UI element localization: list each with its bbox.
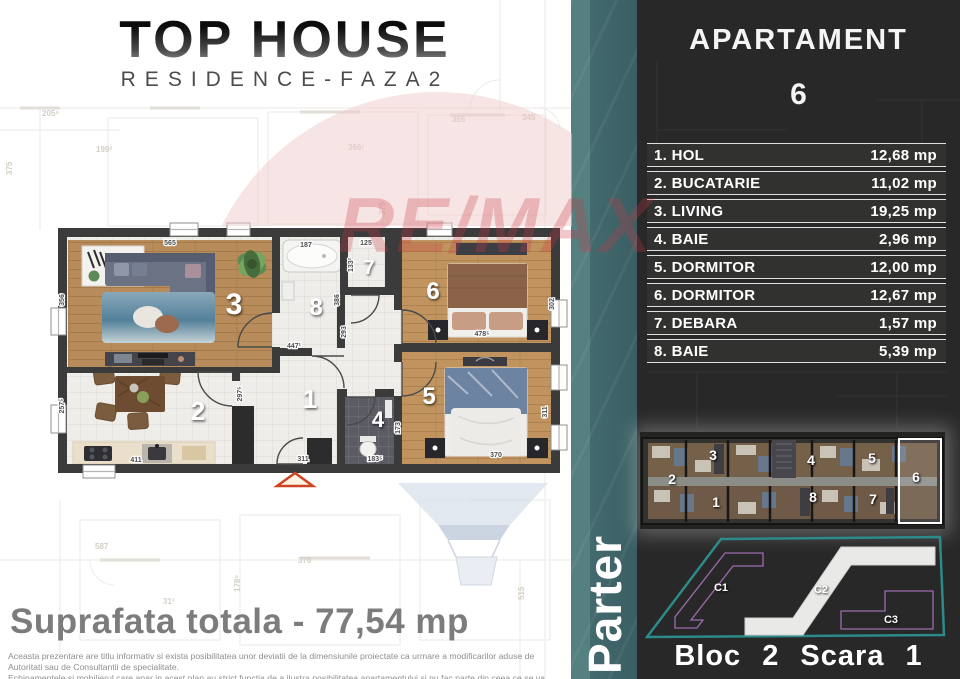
svg-text:355: 355 [452, 115, 466, 124]
room-row: 2. BUCATARIE11,02 mp [647, 171, 946, 195]
svg-text:366¹: 366¹ [348, 143, 364, 152]
svg-text:2: 2 [668, 471, 676, 487]
svg-text:370: 370 [490, 452, 502, 459]
svg-text:125: 125 [360, 240, 372, 247]
svg-text:199³: 199³ [96, 145, 112, 154]
brand-logo: TOP HOUSE RESIDENCE-FAZA2 [60, 14, 510, 92]
bloc-scara-label: Bloc 2 Scara 1 [637, 640, 960, 673]
svg-text:447¹: 447¹ [287, 343, 302, 350]
site-plan: C1C2C3 [645, 533, 947, 639]
room-label: 2. BUCATARIE [654, 175, 760, 192]
room-row: 6. DORMITOR12,67 mp [647, 283, 946, 307]
room-label: 6. DORMITOR [654, 287, 755, 304]
disclaimer-line-1: Aceasta prezentare are titlu informativ … [8, 651, 553, 673]
room-label: 8. BAIE [654, 343, 709, 360]
svg-text:345: 345 [522, 113, 536, 122]
svg-text:386: 386 [334, 294, 341, 306]
real-estate-poster: 205⁵199³375355375345366¹587178⁵31³515378… [0, 0, 960, 679]
disclaimer-line-2: Echipamentele si mobilierul care apar in… [8, 673, 553, 679]
floor-name-vertical: Parter [578, 372, 634, 674]
highlighted-apartment-outline [899, 439, 941, 523]
entrance-triangle-icon [277, 473, 313, 486]
room-area: 12,68 mp [870, 147, 937, 164]
room-area: 1,57 mp [879, 315, 937, 332]
svg-text:133²: 133² [348, 257, 355, 272]
floorplan: 565356257⁵411297⁵447¹293187125133²386311… [48, 216, 570, 493]
svg-text:1: 1 [712, 494, 720, 510]
info-panel: APARTAMENT 6 1. HOL12,68 mp2. BUCATARIE1… [637, 0, 960, 679]
svg-text:173: 173 [395, 422, 402, 434]
svg-text:183⁵: 183⁵ [368, 456, 383, 463]
svg-text:8: 8 [309, 294, 322, 321]
svg-text:7: 7 [869, 491, 877, 507]
svg-text:515: 515 [517, 586, 526, 600]
svg-text:C3: C3 [884, 614, 898, 626]
disclaimer-text: Aceasta prezentare are titlu informativ … [8, 651, 553, 679]
svg-text:587: 587 [95, 542, 109, 551]
svg-text:1: 1 [303, 384, 317, 414]
svg-text:3: 3 [709, 447, 717, 463]
svg-text:7: 7 [363, 257, 374, 279]
room-list: 1. HOL12,68 mp2. BUCATARIE11,02 mp3. LIV… [647, 143, 946, 367]
svg-text:4: 4 [807, 452, 815, 468]
svg-text:6: 6 [912, 469, 920, 485]
svg-text:375: 375 [5, 161, 14, 175]
svg-text:6: 6 [426, 278, 439, 305]
svg-text:C2: C2 [814, 584, 828, 596]
svg-text:565: 565 [164, 240, 176, 247]
svg-text:356: 356 [59, 294, 66, 306]
room-area: 12,00 mp [870, 259, 937, 276]
room-row: 1. HOL12,68 mp [647, 143, 946, 167]
svg-text:178⁵: 178⁵ [233, 575, 242, 592]
svg-text:478⁵: 478⁵ [475, 331, 490, 338]
svg-text:378: 378 [298, 556, 312, 565]
svg-text:375: 375 [378, 201, 387, 215]
room-label: 5. DORMITOR [654, 259, 755, 276]
brand-title: TOP HOUSE [60, 14, 510, 66]
svg-text:205⁵: 205⁵ [42, 109, 59, 118]
room-area: 12,67 mp [870, 287, 937, 304]
svg-text:187: 187 [300, 242, 312, 249]
room-area: 2,96 mp [879, 231, 937, 248]
svg-text:5: 5 [868, 450, 876, 466]
svg-text:302: 302 [549, 298, 556, 310]
svg-text:311: 311 [297, 456, 308, 463]
svg-text:3: 3 [226, 288, 243, 321]
svg-text:5: 5 [422, 383, 435, 410]
room-area: 19,25 mp [870, 203, 937, 220]
apartment-number: 6 [637, 78, 960, 112]
floor-overview-thumbnail: 23456187 [640, 432, 945, 529]
room-label: 7. DEBARA [654, 315, 738, 332]
svg-text:311: 311 [542, 406, 549, 417]
room-row: 3. LIVING19,25 mp [647, 199, 946, 223]
room-row: 4. BAIE2,96 mp [647, 227, 946, 251]
apartment-label: APARTAMENT [637, 24, 960, 57]
svg-text:2: 2 [191, 396, 205, 426]
room-row: 5. DORMITOR12,00 mp [647, 255, 946, 279]
brand-subtitle: RESIDENCE-FAZA2 [60, 68, 510, 92]
total-area-label: Suprafata totala - 77,54 mp [10, 602, 469, 642]
svg-text:257⁵: 257⁵ [59, 399, 66, 414]
room-row: 8. BAIE5,39 mp [647, 339, 946, 363]
room-row: 7. DEBARA1,57 mp [647, 311, 946, 335]
svg-text:293: 293 [341, 326, 348, 338]
svg-text:4: 4 [372, 407, 385, 432]
svg-text:8: 8 [809, 489, 817, 505]
room-label: 4. BAIE [654, 231, 709, 248]
room-area: 5,39 mp [879, 343, 937, 360]
svg-text:297⁵: 297⁵ [237, 387, 244, 402]
room-area: 11,02 mp [871, 175, 937, 192]
svg-text:C1: C1 [714, 582, 728, 594]
room-label: 1. HOL [654, 147, 704, 164]
svg-text:411: 411 [130, 457, 141, 464]
room-label: 3. LIVING [654, 203, 723, 220]
